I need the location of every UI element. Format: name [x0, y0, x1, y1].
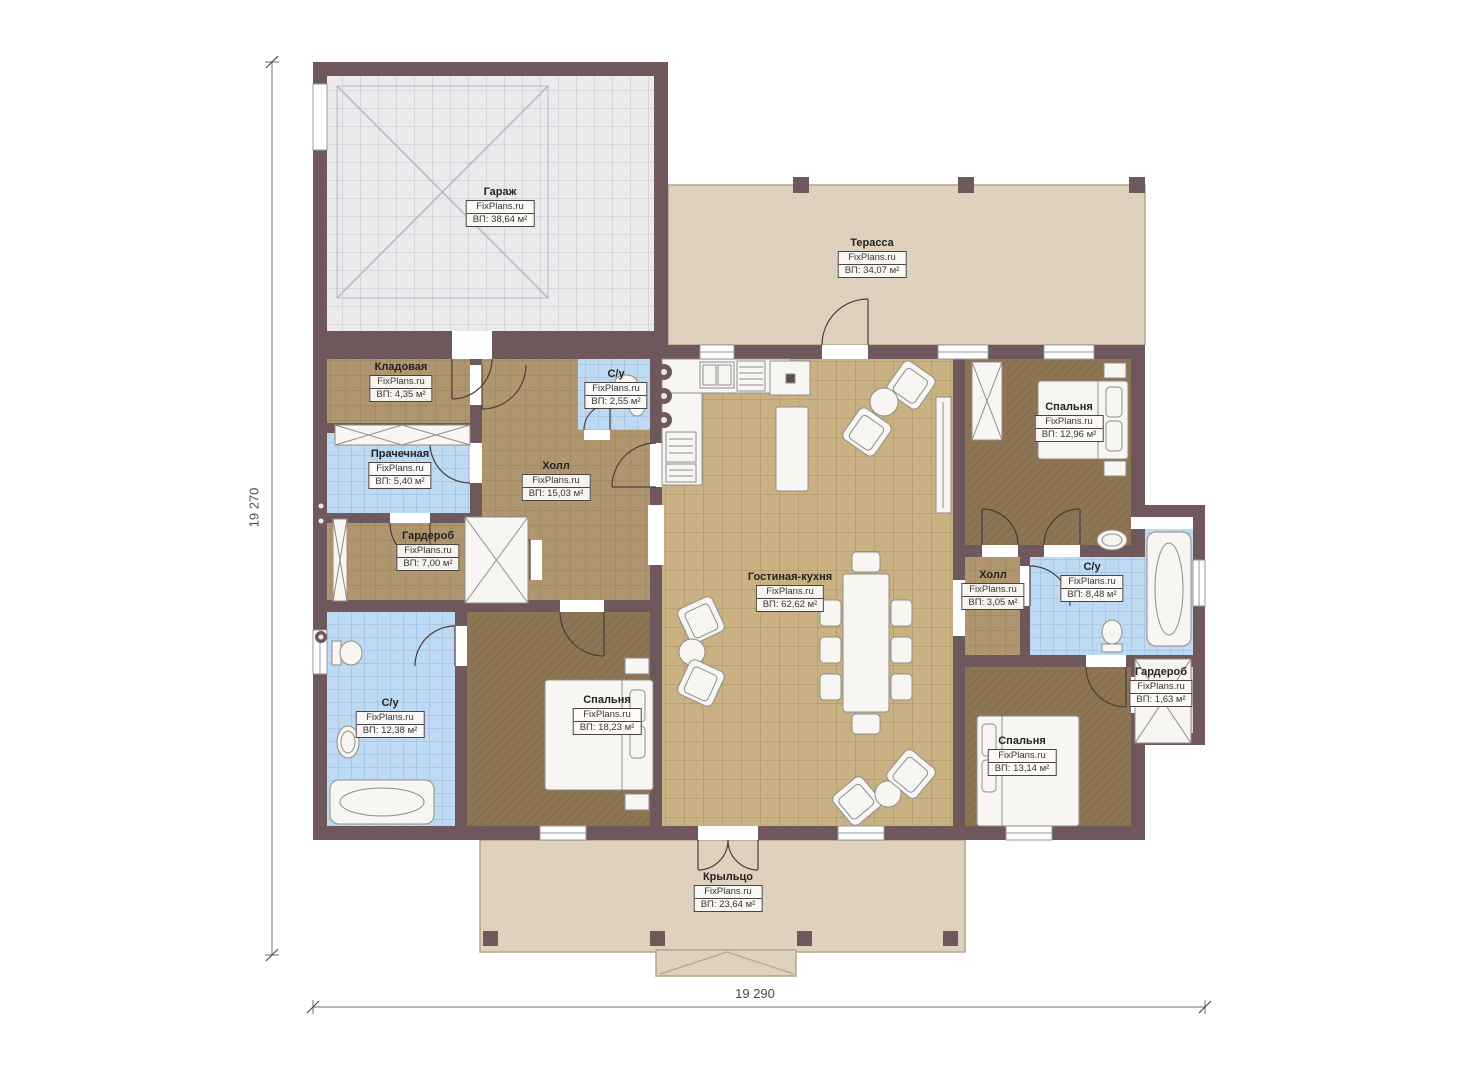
- room-name: Холл: [961, 569, 1024, 582]
- room-label-bedroom-top-right: Спальня FixPlans.ru ВП: 12,96 м²: [1035, 401, 1104, 442]
- sink-right: [1097, 530, 1127, 550]
- brand-text: FixPlans.ru: [369, 463, 430, 476]
- dimension-bottom: 19 290: [735, 986, 775, 1001]
- room-area: ВП: 62,62 м²: [757, 599, 824, 611]
- room-area: ВП: 13,14 м²: [989, 763, 1056, 775]
- brand-text: FixPlans.ru: [757, 586, 824, 599]
- closet-bedroom-top-right: [972, 362, 1002, 440]
- porch-steps: [656, 950, 796, 976]
- room-name: Гардероб: [1129, 666, 1192, 679]
- brand-text: FixPlans.ru: [839, 252, 906, 265]
- porch-column: [483, 931, 498, 946]
- room-name: Спальня: [1035, 401, 1104, 414]
- kitchen-island: [776, 407, 808, 491]
- room-area: ВП: 15,03 м²: [523, 488, 590, 500]
- room-name: Холл: [522, 460, 591, 473]
- room-area: ВП: 3,05 м²: [962, 597, 1023, 609]
- room-area: ВП: 18,23 м²: [574, 722, 641, 734]
- room-area: ВП: 7,00 м²: [397, 558, 458, 570]
- room-name: Спальня: [988, 735, 1057, 748]
- room-label-bedroom-left: Спальня FixPlans.ru ВП: 18,23 м²: [573, 694, 642, 735]
- room-label-wardrobe-left: Гардероб FixPlans.ru ВП: 7,00 м²: [396, 530, 459, 571]
- room-name: Кладовая: [369, 361, 432, 374]
- dimension-left: 19 270: [246, 488, 261, 528]
- terrace-column: [1129, 177, 1145, 193]
- room-name: Гардероб: [396, 530, 459, 543]
- brand-text: FixPlans.ru: [370, 376, 431, 389]
- room-area: ВП: 5,40 м²: [369, 476, 430, 488]
- brand-text: FixPlans.ru: [695, 886, 762, 899]
- room-label-laundry: Прачечная FixPlans.ru ВП: 5,40 м²: [368, 448, 431, 489]
- closet-laundry: [335, 425, 470, 445]
- room-label-bath-top: С/у FixPlans.ru ВП: 2,55 м²: [584, 368, 647, 409]
- room-label-living-kitchen: Гостиная-кухня FixPlans.ru ВП: 62,62 м²: [748, 571, 832, 612]
- porch-column: [943, 931, 958, 946]
- room-area: ВП: 12,96 м²: [1036, 429, 1103, 441]
- room-label-hall-right: Холл FixPlans.ru ВП: 3,05 м²: [961, 569, 1024, 610]
- room-area: ВП: 38,64 м²: [467, 214, 534, 226]
- room-name: С/у: [1060, 561, 1123, 574]
- room-area: ВП: 1,63 м²: [1130, 694, 1191, 706]
- brand-text: FixPlans.ru: [523, 475, 590, 488]
- room-label-bedroom-bottom-right: Спальня FixPlans.ru ВП: 13,14 м²: [988, 735, 1057, 776]
- room-name: Прачечная: [368, 448, 431, 461]
- porch-column: [650, 931, 665, 946]
- terrace-area: [668, 177, 1145, 345]
- brand-text: FixPlans.ru: [989, 750, 1056, 763]
- room-label-storage: Кладовая FixPlans.ru ВП: 4,35 м²: [369, 361, 432, 402]
- room-name: Крыльцо: [694, 871, 763, 884]
- room-name: Гараж: [466, 186, 535, 199]
- brand-text: FixPlans.ru: [357, 712, 424, 725]
- bathtub-left: [330, 780, 434, 824]
- room-label-bath-left: С/у FixPlans.ru ВП: 12,38 м²: [356, 697, 425, 738]
- brand-text: FixPlans.ru: [1036, 416, 1103, 429]
- brand-text: FixPlans.ru: [467, 201, 534, 214]
- floor-plan-page: Гараж FixPlans.ru ВП: 38,64 м² Терасса F…: [0, 0, 1474, 1080]
- room-area: ВП: 12,38 м²: [357, 725, 424, 737]
- room-label-wardrobe-right: Гардероб FixPlans.ru ВП: 1,63 м²: [1129, 666, 1192, 707]
- room-area: ВП: 2,55 м²: [585, 396, 646, 408]
- room-name: С/у: [584, 368, 647, 381]
- room-name: Спальня: [573, 694, 642, 707]
- room-label-bath-right: С/у FixPlans.ru ВП: 8,48 м²: [1060, 561, 1123, 602]
- kitchen-oven: [666, 432, 696, 462]
- brand-text: FixPlans.ru: [962, 584, 1023, 597]
- bathtub-right: [1147, 532, 1191, 646]
- room-label-porch: Крыльцо FixPlans.ru ВП: 23,64 м²: [694, 871, 763, 912]
- porch-column: [797, 931, 812, 946]
- floor-plan-graphic: [0, 0, 1474, 1080]
- room-name: Гостиная-кухня: [748, 571, 832, 584]
- room-area: ВП: 34,07 м²: [839, 265, 906, 277]
- brand-text: FixPlans.ru: [1061, 576, 1122, 589]
- room-name: Терасса: [838, 237, 907, 250]
- toilet-left: [332, 641, 362, 665]
- terrace-column: [793, 177, 809, 193]
- room-area: ВП: 23,64 м²: [695, 899, 762, 911]
- brand-text: FixPlans.ru: [1130, 681, 1191, 694]
- toilet-right: [1102, 620, 1122, 652]
- room-name: С/у: [356, 697, 425, 710]
- brand-text: FixPlans.ru: [397, 545, 458, 558]
- room-label-hall-main: Холл FixPlans.ru ВП: 15,03 м²: [522, 460, 591, 501]
- brand-text: FixPlans.ru: [574, 709, 641, 722]
- brand-text: FixPlans.ru: [585, 383, 646, 396]
- room-area: ВП: 8,48 м²: [1061, 589, 1122, 601]
- room-area: ВП: 4,35 м²: [370, 389, 431, 401]
- room-label-garage: Гараж FixPlans.ru ВП: 38,64 м²: [466, 186, 535, 227]
- room-label-terrace: Терасса FixPlans.ru ВП: 34,07 м²: [838, 237, 907, 278]
- garage-side-door: [313, 84, 327, 150]
- terrace-column: [958, 177, 974, 193]
